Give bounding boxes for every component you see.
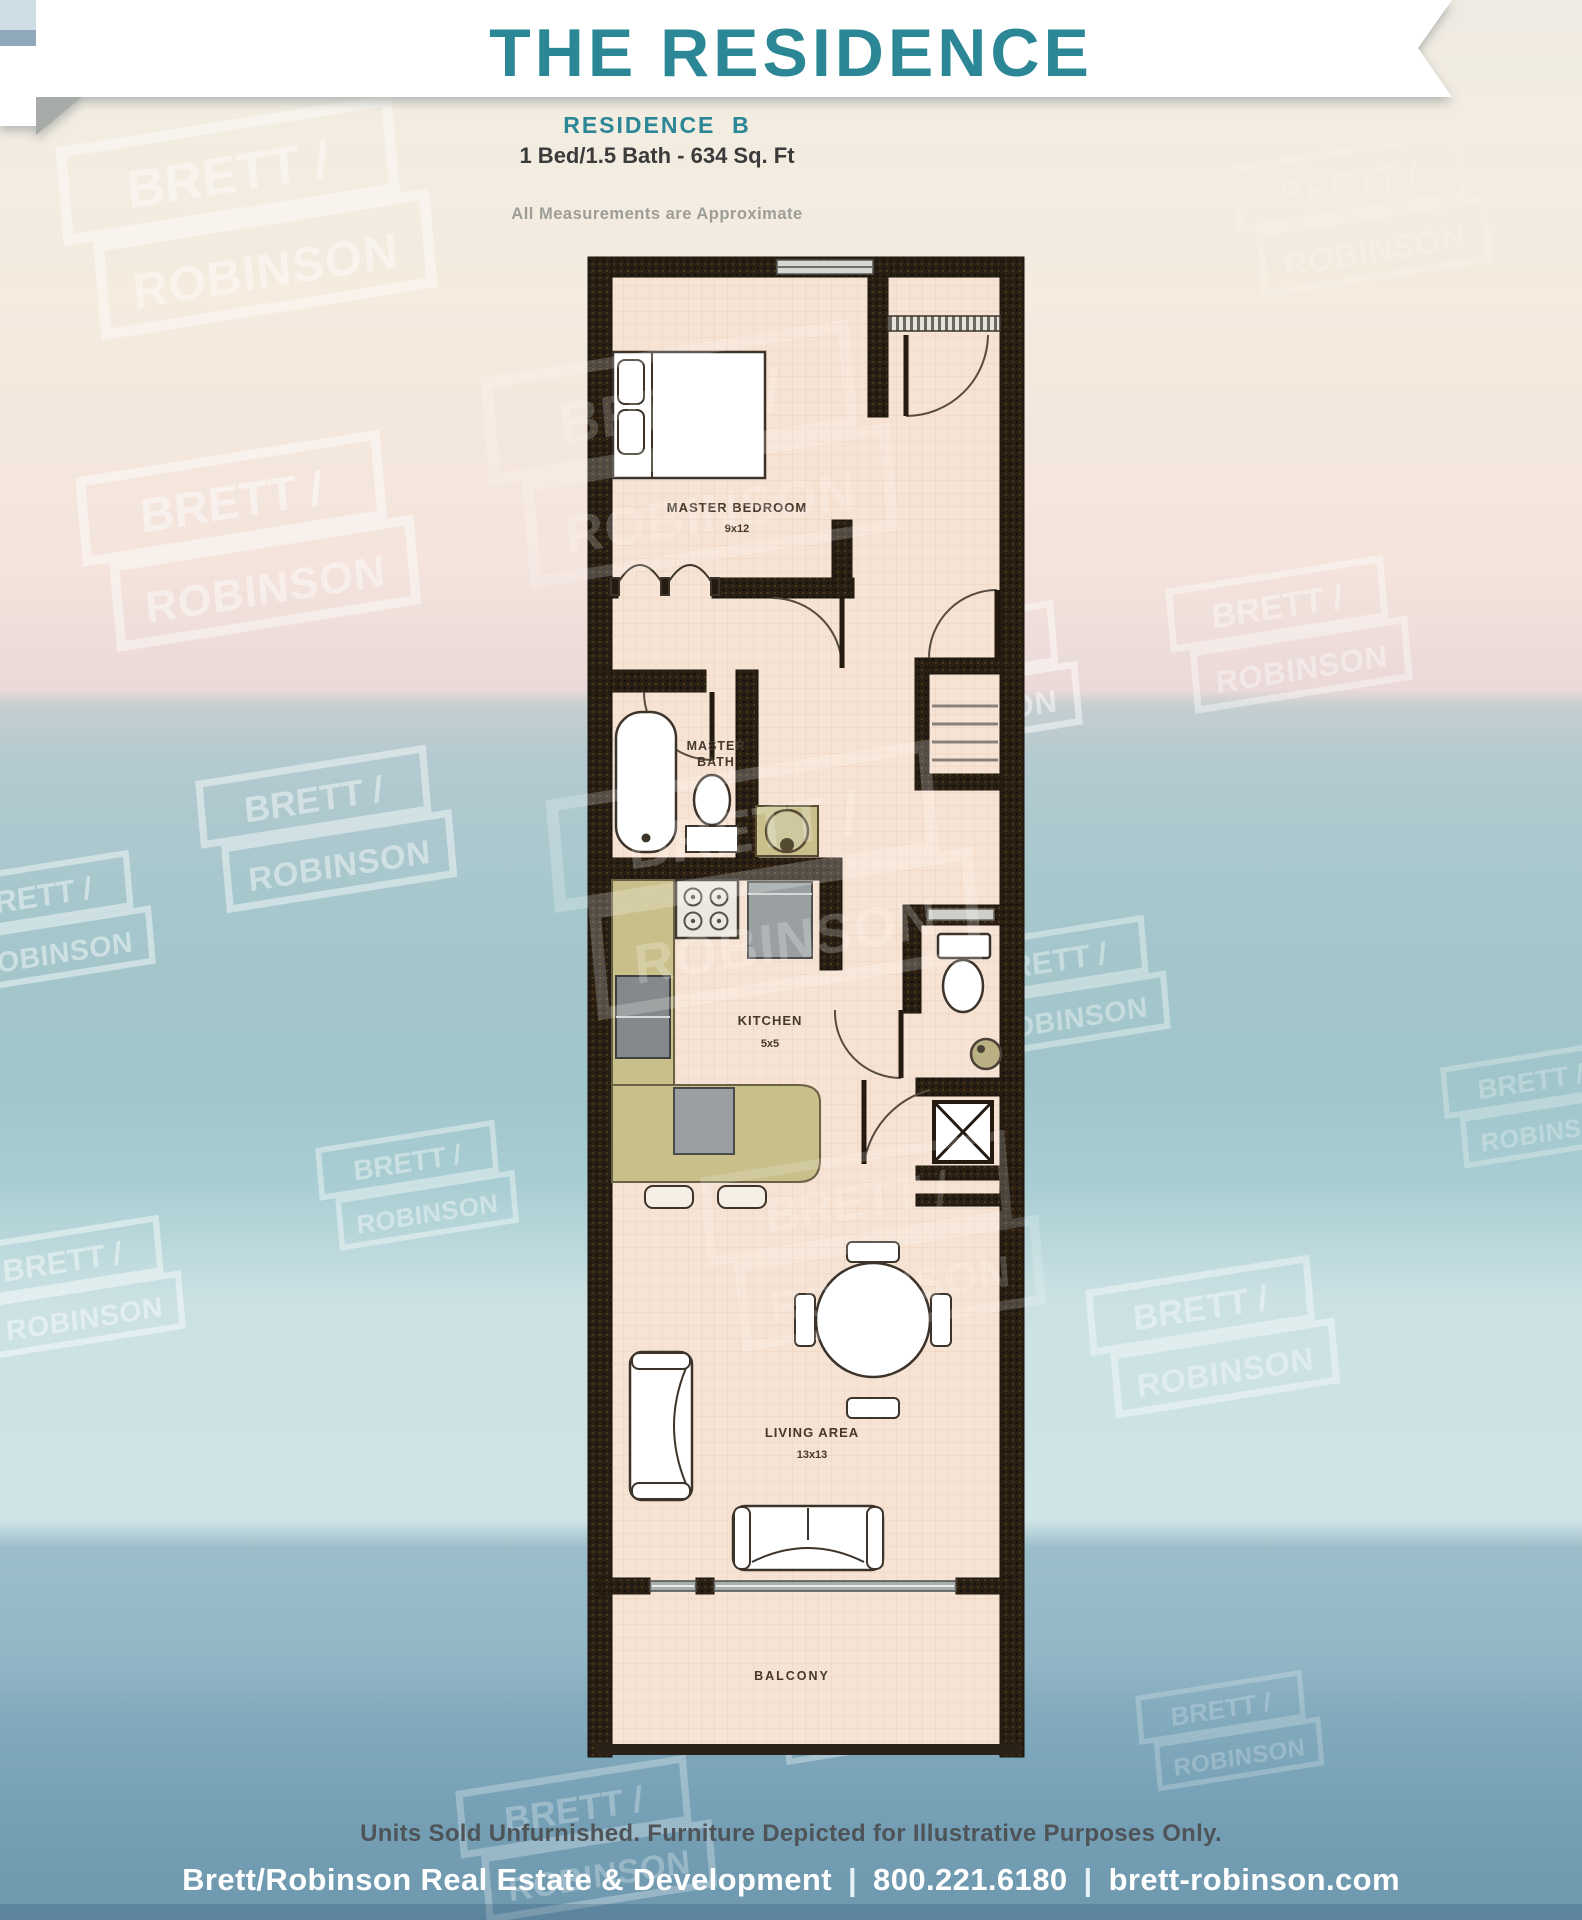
floorplan: MASTER BEDROOM 9x12 MASTER BATH KITCHEN … — [565, 240, 1045, 1780]
footer-separator-2: | — [1067, 1862, 1108, 1897]
master-bedroom-dims: 9x12 — [725, 523, 749, 535]
loveseat — [630, 1352, 692, 1500]
company-website: brett-robinson.com — [1109, 1862, 1400, 1897]
residence-specs: 1 Bed/1.5 Bath - 634 Sq. Ft — [0, 143, 1314, 169]
dishwasher — [748, 882, 812, 958]
bottom-strip — [0, 1904, 1582, 1920]
footer-separator-1: | — [832, 1862, 873, 1897]
stove — [676, 880, 738, 938]
corner-sink — [971, 1039, 1001, 1069]
company-name: Brett/Robinson Real Estate & Development — [182, 1862, 832, 1897]
master-bath-label-2: BATH — [697, 755, 735, 769]
page-title: THE RESIDENCE — [0, 14, 1582, 92]
bedroom-window — [777, 260, 873, 274]
bathtub — [616, 712, 676, 852]
sofa — [733, 1506, 883, 1570]
residence-name: RESIDENCE B — [0, 112, 1314, 139]
living-area-dims: 13x13 — [797, 1449, 828, 1461]
kitchen-label: KITCHEN — [738, 1013, 803, 1028]
utility-closet — [934, 1102, 992, 1162]
measurements-note: All Measurements are Approximate — [0, 205, 1314, 224]
company-phone: 800.221.6180 — [873, 1862, 1067, 1897]
kitchen-corner-sink — [756, 806, 818, 856]
bed — [613, 352, 765, 478]
half-bath-window — [928, 909, 994, 920]
master-bedroom-label: MASTER BEDROOM — [667, 500, 807, 515]
bar-sink — [674, 1088, 734, 1154]
footer-company-line: Brett/Robinson Real Estate & Development… — [0, 1862, 1582, 1898]
balcony-rail — [596, 1744, 1020, 1755]
balcony-sliding-door — [650, 1581, 956, 1591]
master-bath-label-1: MASTER — [687, 739, 746, 753]
kitchen-dims: 5x5 — [761, 1038, 779, 1050]
refrigerator — [616, 976, 670, 1058]
footer-disclaimer: Units Sold Unfurnished. Furniture Depict… — [0, 1820, 1582, 1848]
entry-threshold — [888, 316, 1000, 331]
balcony-label: BALCONY — [754, 1669, 830, 1683]
living-area-label: LIVING AREA — [765, 1425, 859, 1440]
